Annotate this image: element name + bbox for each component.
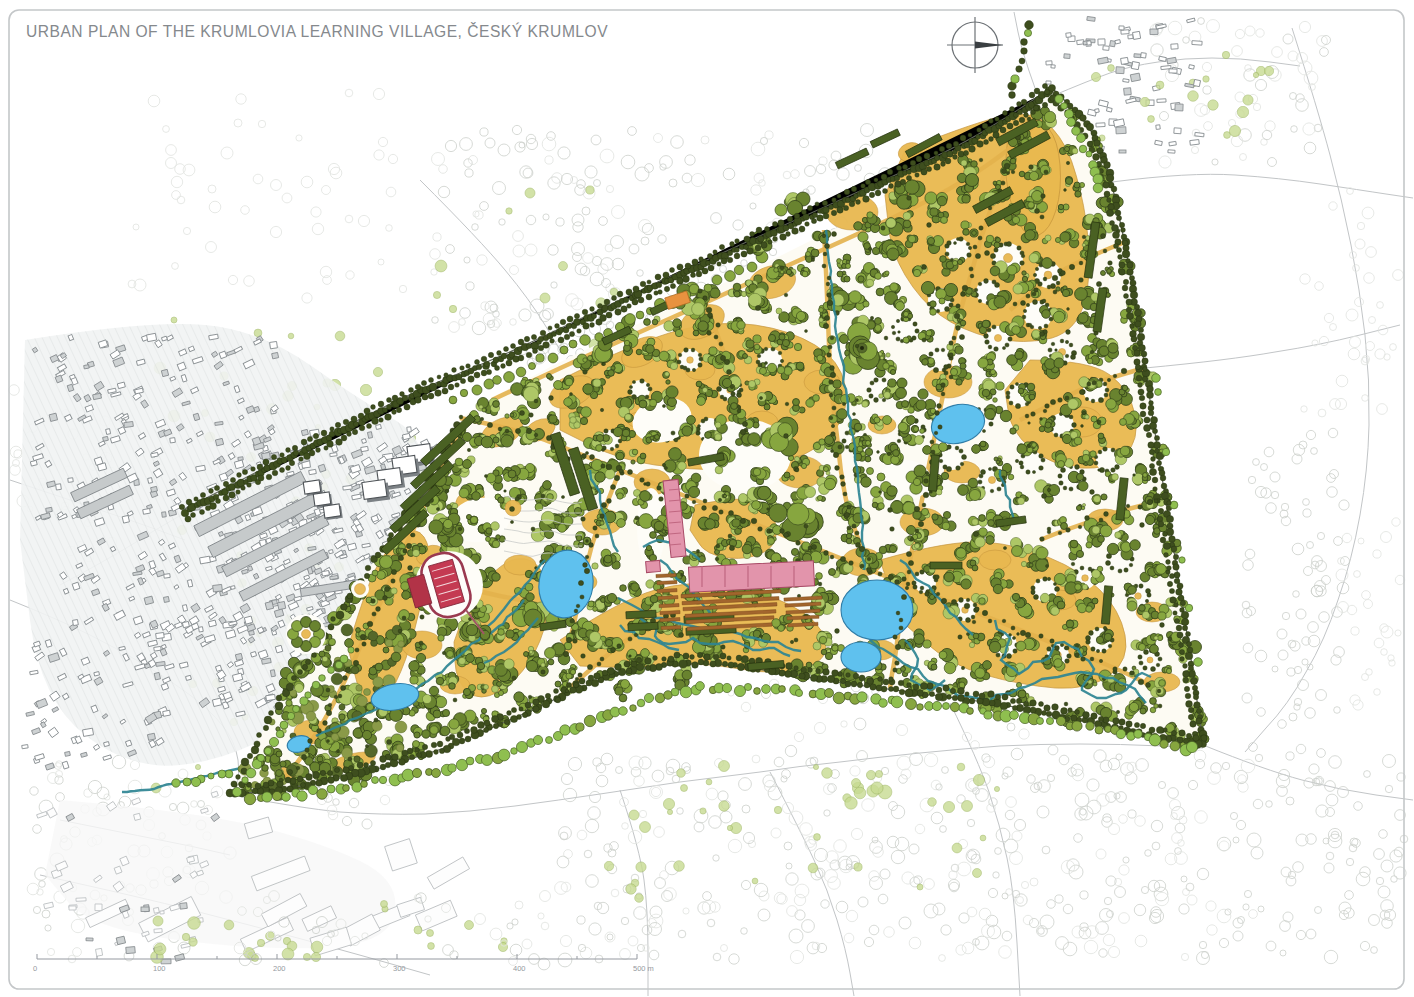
svg-text:100: 100 [153, 964, 166, 973]
svg-text:200: 200 [273, 964, 286, 973]
svg-text:0: 0 [33, 964, 37, 973]
svg-text:400: 400 [513, 964, 526, 973]
svg-text:URBAN PLAN OF THE KRUMLOVIA LE: URBAN PLAN OF THE KRUMLOVIA LEARNING VIL… [26, 22, 608, 40]
svg-text:300: 300 [393, 964, 406, 973]
svg-text:500 m: 500 m [633, 964, 654, 973]
